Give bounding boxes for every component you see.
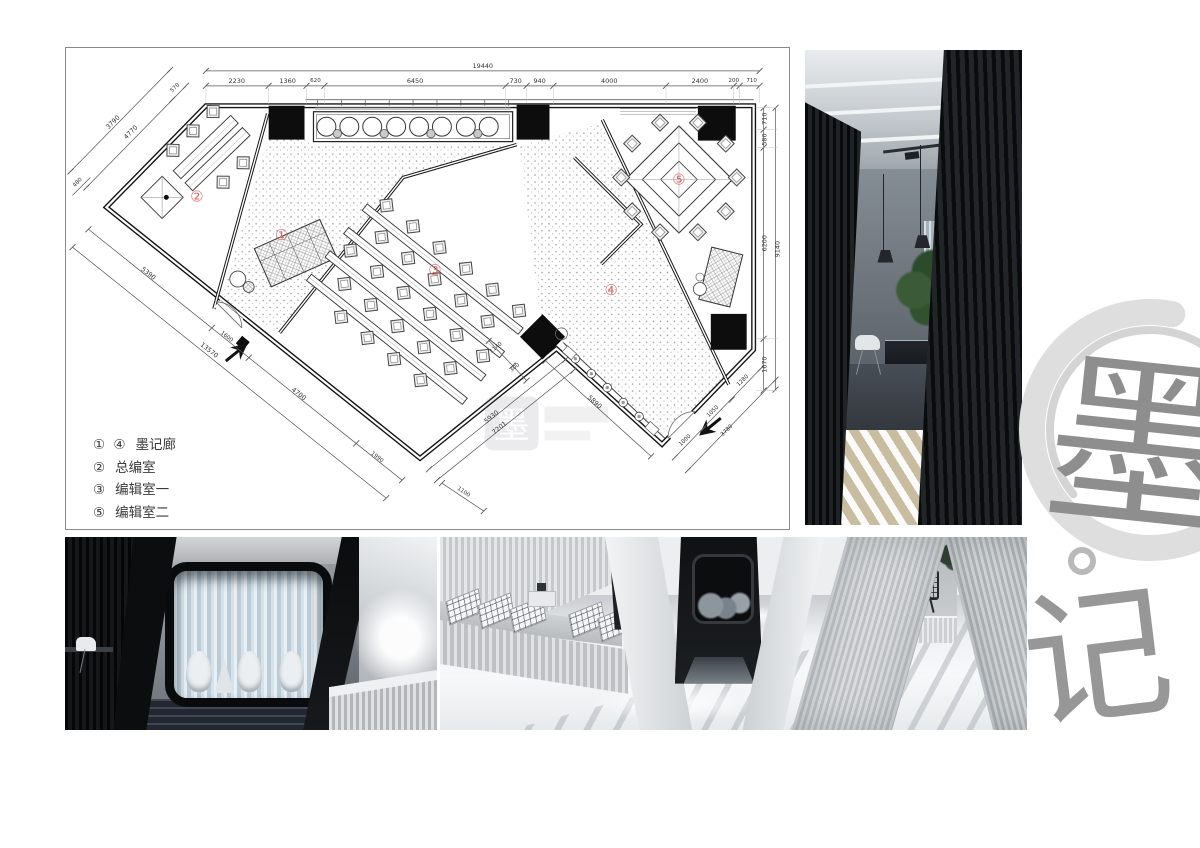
dimension-label: 2230	[229, 77, 245, 85]
legend-numbers: ⑤	[93, 504, 107, 524]
brand-logo: 墨 记	[1030, 265, 1200, 715]
legend-row: ② 总编室	[93, 459, 176, 479]
legend-row: ⑤ 编辑室二	[93, 504, 176, 524]
dimension-label: 4000	[601, 77, 617, 85]
floor-plan-panel: 墨 19440 2230	[65, 47, 790, 530]
gallery-counter	[313, 112, 512, 142]
dimension-label: 2400	[692, 77, 708, 85]
legend-label: 编辑室一	[115, 481, 169, 501]
doorway-window	[692, 554, 754, 624]
legend-row: ① ④ 墨记廊	[93, 436, 176, 456]
room-label-4: ④	[605, 281, 618, 299]
logo-character-ji: 记	[1009, 529, 1182, 760]
chair	[855, 335, 880, 350]
dimension-label: 4700	[290, 386, 308, 403]
tub-chair	[186, 651, 211, 692]
dimension-label: 710	[761, 113, 769, 125]
white-chair	[76, 637, 96, 651]
room-label-5: ⑤	[672, 170, 685, 188]
dimension-label: 1050	[706, 404, 721, 418]
dimension-label: 200	[728, 78, 739, 84]
room-label-2: ②	[190, 187, 203, 205]
dimension-label: 710	[746, 78, 757, 84]
legend-label: 编辑室二	[115, 504, 169, 524]
dimension-label: 940	[533, 77, 545, 85]
dimension-label: 9140	[774, 241, 782, 257]
dimension-label: 5390	[139, 265, 157, 282]
legend-numbers: ③	[93, 481, 107, 501]
photo-white-corridor	[440, 537, 1027, 730]
dimension-label: 480	[72, 177, 84, 189]
room-label-3: ③	[428, 261, 441, 279]
legend-numbers: ②	[93, 459, 107, 479]
dimension-label: 580	[761, 133, 769, 145]
dimension-label: 1100	[456, 486, 471, 499]
legend-label: 墨记廊	[136, 436, 177, 456]
legend-numbers: ① ④	[93, 436, 128, 456]
pendant-cord	[883, 174, 884, 250]
doorway-floor	[684, 657, 754, 684]
dimension-label: 3780	[720, 423, 735, 437]
room-label-1: ①	[275, 226, 288, 244]
legend-label: 总编室	[115, 459, 156, 479]
dimension-label: 1360	[279, 77, 295, 85]
decor-box	[528, 591, 556, 607]
rounded-window	[165, 562, 332, 707]
photo-office-black-curtains	[805, 50, 1022, 525]
dimension-label: 620	[310, 78, 321, 84]
legend-row: ③ 编辑室一	[93, 481, 176, 501]
dimension-label: 1000	[678, 433, 693, 447]
spotlight-glow	[355, 589, 437, 678]
dimension-label: 730	[509, 77, 521, 85]
dimension-label: 1990	[369, 451, 384, 465]
tub-chair	[237, 651, 262, 692]
dimension-label: 1670	[761, 356, 769, 372]
dimension-label: 19440	[472, 62, 493, 70]
dimension-label: 6200	[761, 235, 769, 251]
dimension-label: 1280	[736, 373, 751, 387]
dimension-label: 6450	[407, 77, 423, 85]
dimension-label: 4770	[122, 124, 139, 141]
photo-lounge-window	[65, 537, 437, 730]
dimension-label: 1600	[219, 330, 234, 344]
pendant-cord	[920, 145, 921, 235]
plan-legend: ① ④ 墨记廊 ② 总编室 ③ 编辑室一 ⑤ 编辑室二	[93, 436, 176, 526]
tub-chair	[279, 651, 304, 692]
side-table	[215, 658, 234, 694]
